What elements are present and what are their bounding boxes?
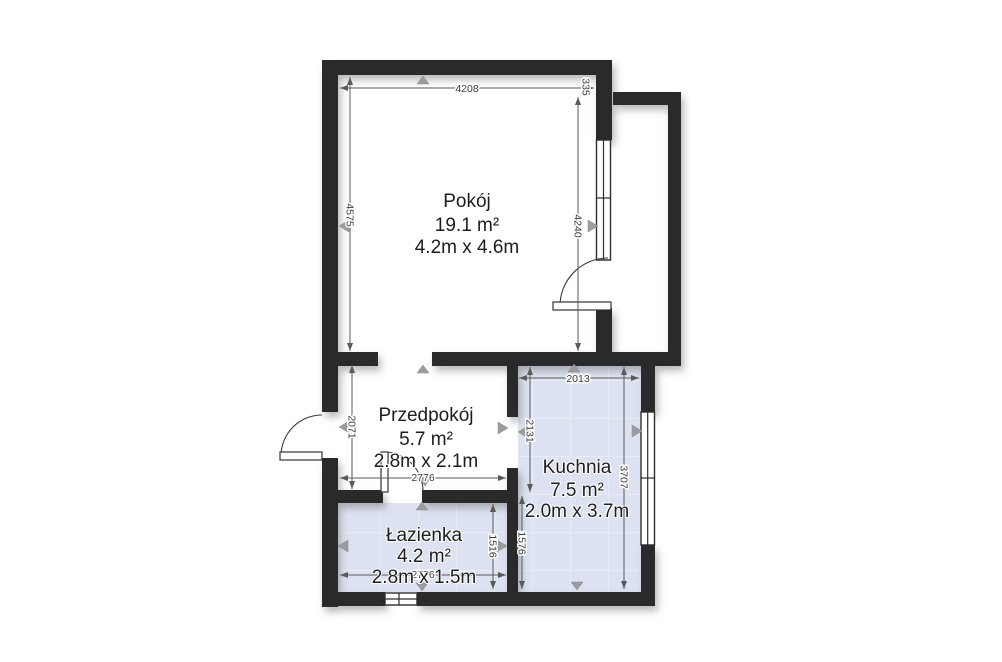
door-entrance — [280, 415, 322, 460]
room-name-pokoj: Pokój — [443, 191, 491, 212]
dim-kitchen-right: 3707 — [618, 465, 630, 489]
wall-top — [322, 60, 612, 75]
dim-hall-left: 2071 — [346, 415, 358, 439]
dim-pokoj-left: 4575 — [344, 203, 356, 227]
room-area-lazienka: 4.2 m² — [397, 546, 451, 567]
wall-left-lower — [322, 458, 338, 607]
floor-plan-page: 4208 4575 4240 335 2071 2776 2013 2131 3… — [0, 0, 1002, 662]
room-area-pokoj: 19.1 m² — [435, 215, 499, 236]
room-size-pokoj: 4.2m x 4.6m — [415, 237, 520, 258]
room-name-lazienka: Łazienka — [386, 525, 462, 546]
wall-right-upper — [596, 60, 612, 140]
wall-hall-kitchen-upper — [507, 352, 518, 417]
window-bathroom — [385, 593, 417, 605]
room-size-przedpokoj: 2.8m x 2.1m — [374, 451, 479, 472]
dim-balcony-offset: 335 — [580, 78, 592, 96]
room-area-przedpokoj: 5.7 m² — [399, 429, 453, 450]
dim-pokoj-right: 4240 — [572, 214, 584, 238]
door-balcony — [553, 258, 611, 310]
room-name-przedpokoj: Przedpokój — [378, 405, 473, 426]
wall-hall-bath-left — [322, 490, 383, 503]
balcony-wall-right — [668, 92, 681, 366]
wall-kitchen-right-upper — [641, 352, 655, 412]
dim-kitchen-left-upper: 2131 — [524, 419, 536, 443]
dim-kitchen-left-lower: 1576 — [516, 531, 528, 555]
floor-plan-canvas: 4208 4575 4240 335 2071 2776 2013 2131 3… — [0, 0, 1002, 662]
marker-right-hall — [498, 422, 508, 434]
marker-up-hall — [417, 365, 429, 373]
wall-kitchen-right-lower — [641, 545, 655, 606]
room-area-kuchnia: 7.5 m² — [550, 480, 604, 501]
wall-bottom-left — [322, 592, 385, 606]
dim-kitchen-top: 2013 — [566, 373, 590, 385]
dim-pokoj-top: 4208 — [455, 83, 479, 95]
dim-hall-bottom: 2776 — [411, 472, 435, 484]
room-size-kuchnia: 2.0m x 3.7m — [525, 501, 630, 522]
wall-hall-bath-right — [422, 490, 518, 503]
marker-up-pokoj — [417, 76, 429, 84]
window-pokoj — [597, 140, 611, 260]
room-size-lazienka: 2.8m x 1.5m — [372, 567, 477, 588]
wall-bottom-right — [417, 592, 655, 606]
wall-pokoj-bottom-left — [322, 352, 378, 366]
room-name-kuchnia: Kuchnia — [543, 457, 612, 478]
dim-bath-right: 1516 — [487, 534, 499, 558]
window-kitchen — [641, 412, 655, 545]
